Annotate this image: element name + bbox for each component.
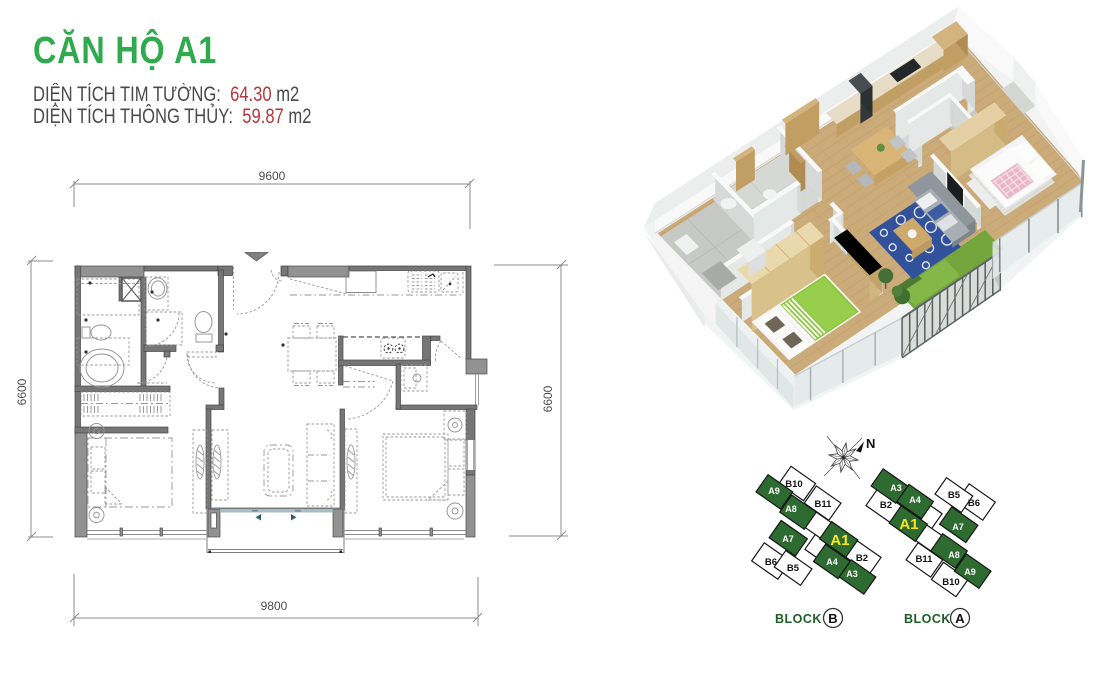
svg-text:BLOCK: BLOCK (775, 612, 822, 626)
svg-text:B10: B10 (785, 479, 802, 490)
svg-text:A9: A9 (768, 486, 780, 496)
svg-text:A4: A4 (826, 557, 838, 567)
svg-text:B5: B5 (787, 563, 800, 574)
svg-text:B10: B10 (942, 577, 959, 588)
svg-text:B2: B2 (856, 553, 868, 564)
svg-text:B: B (828, 611, 837, 626)
svg-text:A3: A3 (890, 483, 902, 493)
svg-text:B11: B11 (815, 499, 833, 510)
svg-text:B2: B2 (880, 500, 892, 511)
svg-text:A8: A8 (785, 504, 797, 514)
svg-text:B6: B6 (968, 498, 980, 509)
svg-text:9600: 9600 (259, 169, 286, 183)
svg-text:B11: B11 (916, 554, 934, 565)
svg-text:A: A (955, 611, 965, 626)
svg-text:6600: 6600 (15, 378, 29, 405)
svg-text:A4: A4 (909, 495, 921, 505)
svg-text:BLOCK: BLOCK (904, 612, 951, 626)
svg-text:6600: 6600 (541, 385, 555, 412)
svg-text:B6: B6 (765, 557, 777, 568)
svg-text:A7: A7 (952, 522, 964, 532)
svg-text:A3: A3 (846, 569, 858, 579)
svg-text:A1: A1 (899, 516, 918, 533)
svg-text:A7: A7 (782, 534, 794, 544)
svg-text:9800: 9800 (261, 599, 288, 613)
svg-text:A8: A8 (948, 550, 960, 560)
svg-text:N: N (866, 436, 875, 451)
svg-text:A9: A9 (964, 567, 976, 577)
svg-text:B5: B5 (948, 490, 961, 501)
svg-text:A1: A1 (830, 532, 849, 549)
